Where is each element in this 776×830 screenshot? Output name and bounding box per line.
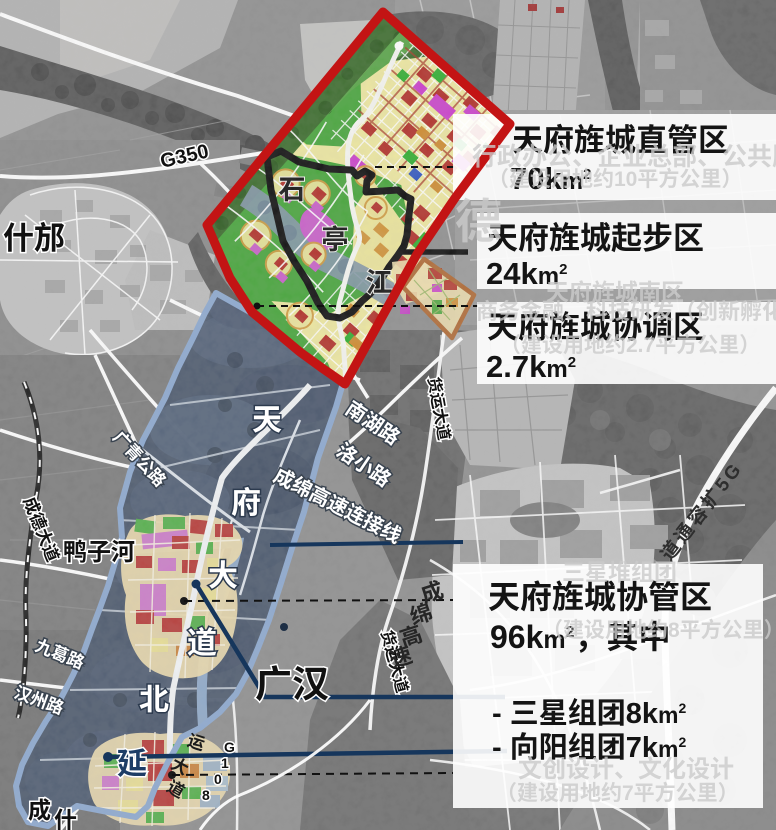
- svg-text:天: 天: [252, 395, 282, 439]
- svg-text:广汉: 广汉: [255, 654, 329, 708]
- svg-text:大: 大: [208, 551, 238, 595]
- svg-text:成: 成: [28, 791, 51, 825]
- svg-text:道: 道: [187, 618, 217, 662]
- svg-text:（建设用地约10平方公里）: （建设用地约10平方公里）: [488, 163, 742, 193]
- svg-text:商务金融、科技研发（创新孵化: 商务金融、科技研发（创新孵化: [476, 294, 776, 326]
- svg-text:什邡: 什邡: [3, 213, 65, 258]
- svg-text:德: 德: [455, 183, 502, 252]
- svg-text:延: 延: [117, 739, 147, 783]
- svg-text:1: 1: [221, 753, 229, 773]
- svg-text:三星堆组团: 三星堆组团: [562, 553, 677, 587]
- svg-text:0: 0: [214, 769, 222, 789]
- svg-text:（建设用地约8平方公里）: （建设用地约8平方公里）: [542, 614, 776, 644]
- svg-text:北: 北: [139, 675, 169, 719]
- svg-text:（建设用地约2.7平方公里）: （建设用地约2.7平方公里）: [500, 329, 760, 359]
- svg-text:（建设用地约7平方公里）: （建设用地约7平方公里）: [496, 777, 739, 807]
- svg-text:什: 什: [54, 801, 77, 830]
- svg-text:府: 府: [231, 478, 261, 522]
- svg-text:鸭子河: 鸭子河: [63, 532, 135, 567]
- svg-text:8: 8: [202, 785, 210, 805]
